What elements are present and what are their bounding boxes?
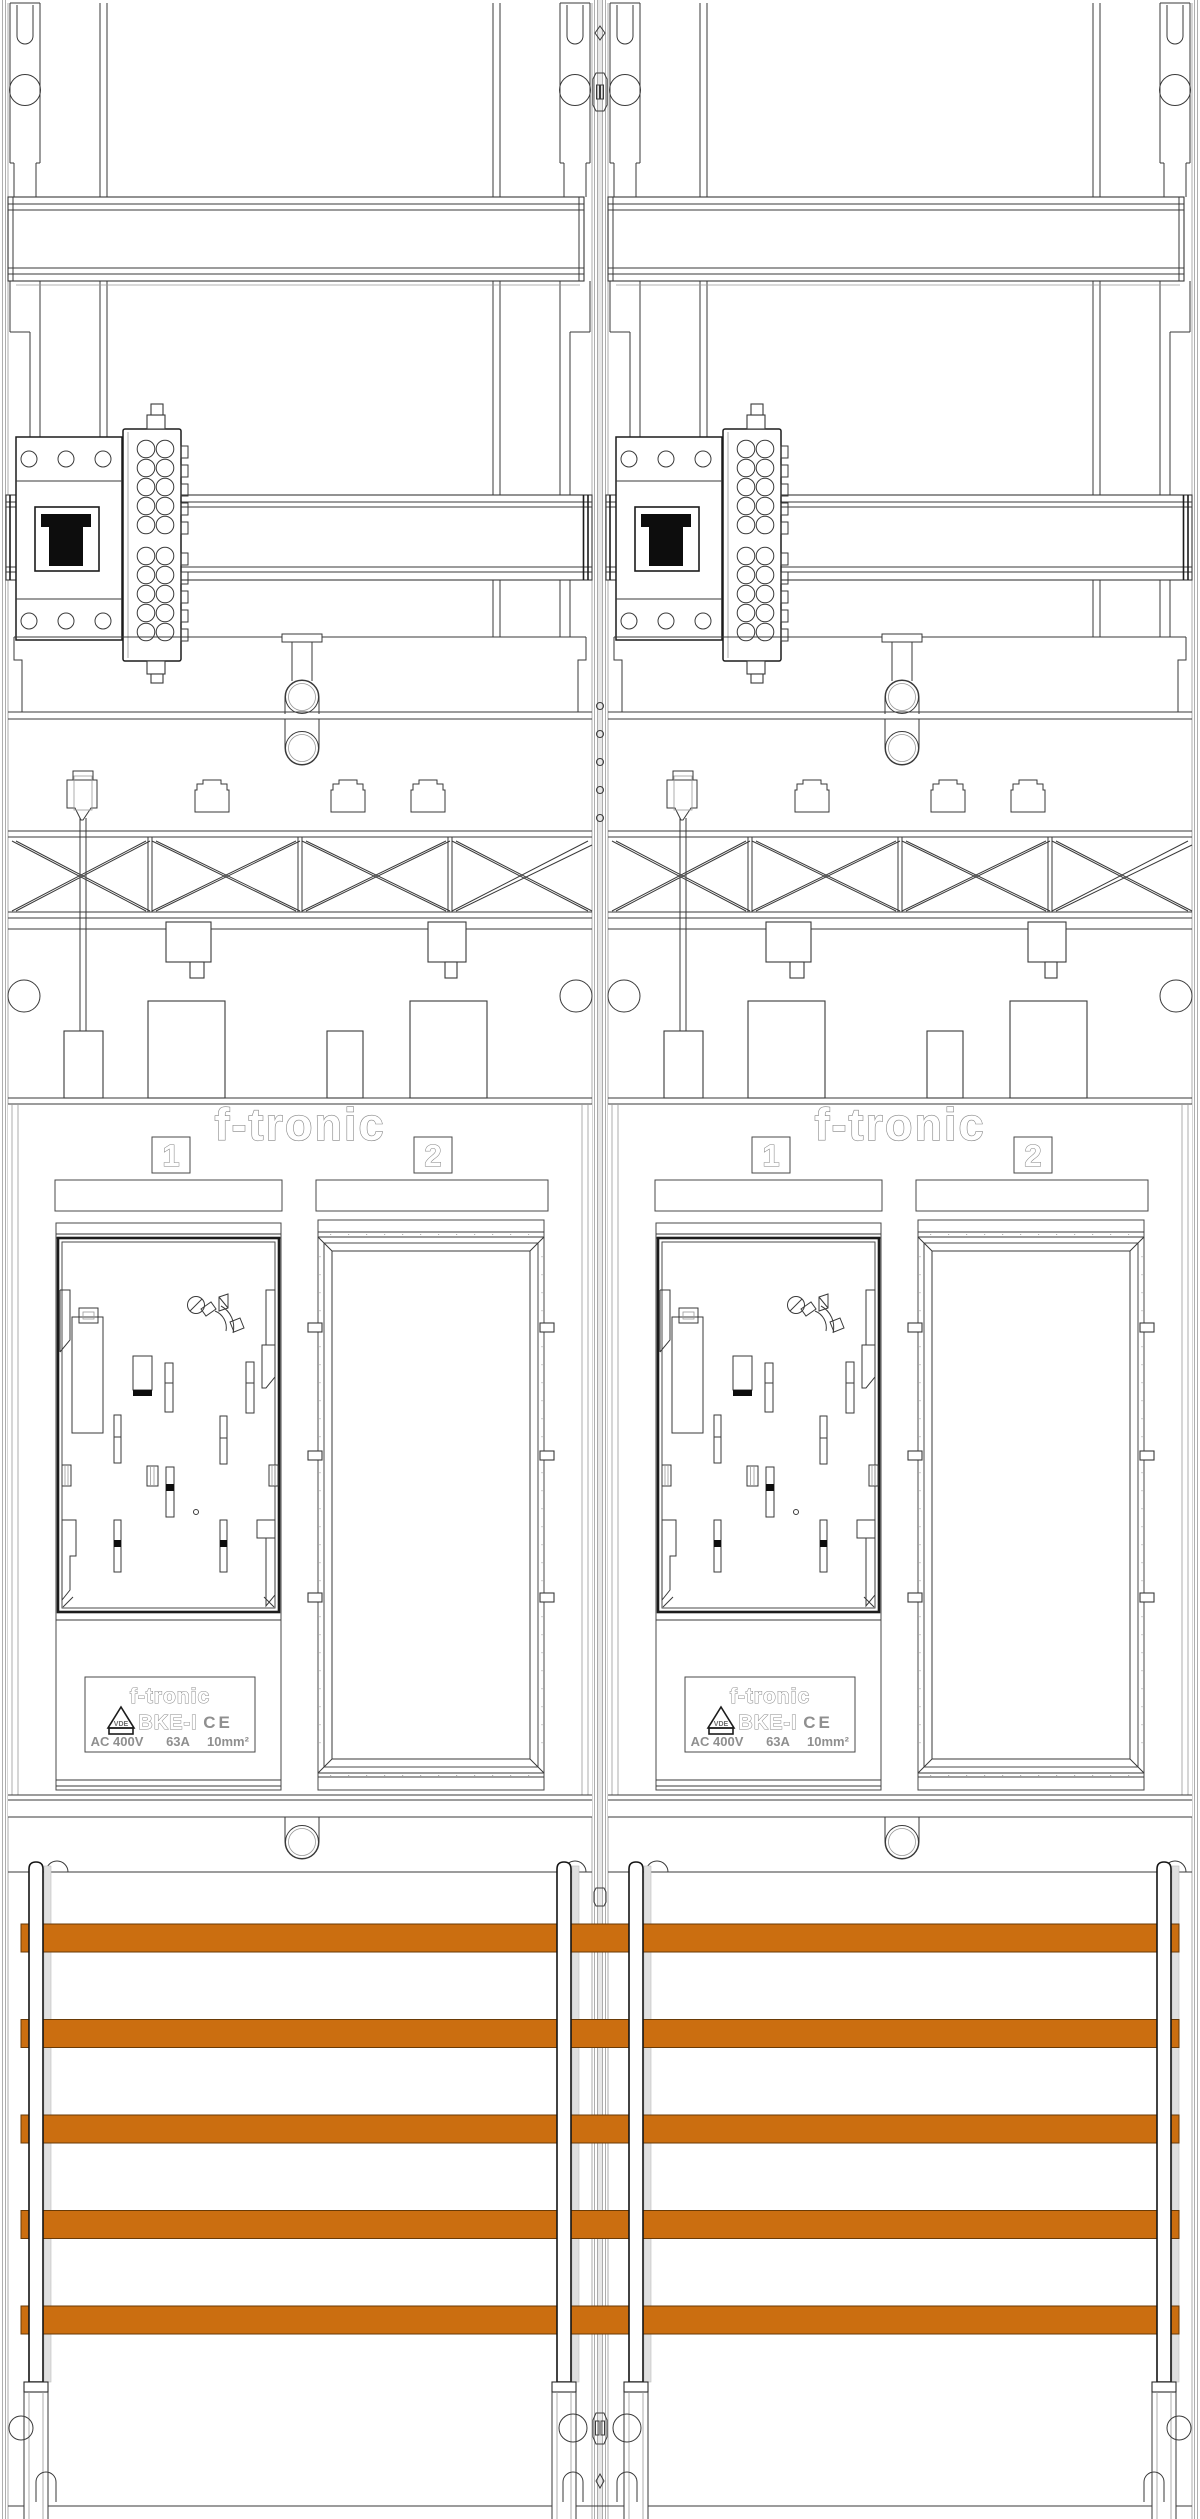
busbar [21, 1924, 1179, 1952]
busbar-support [1157, 1862, 1171, 2382]
busbar [21, 2115, 1179, 2143]
busbar-support [29, 1862, 43, 2382]
busbar-support [629, 1862, 643, 2382]
busbar [21, 2020, 1179, 2048]
busbar [21, 2306, 1179, 2334]
support-foot [552, 2382, 576, 2392]
support-foot [1152, 2382, 1176, 2392]
support-foot [624, 2382, 648, 2392]
meter-cabinet-drawing: f-tronic 1 2 [0, 0, 1200, 2519]
busbar [21, 2211, 1179, 2239]
busbar-support [557, 1862, 571, 2382]
support-foot [24, 2382, 48, 2392]
